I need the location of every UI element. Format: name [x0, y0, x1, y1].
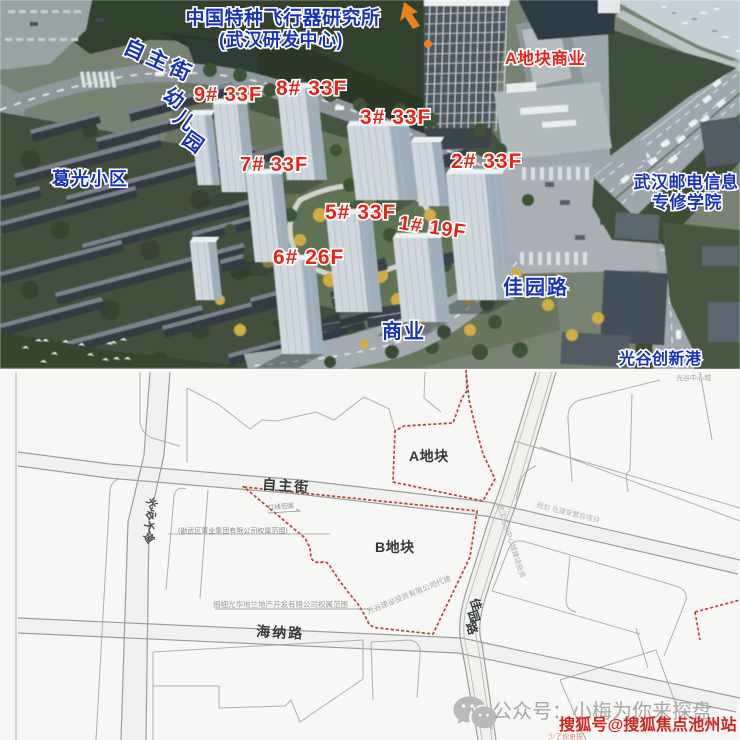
svg-text:中国特种飞行器研究所: 中国特种飞行器研究所 [185, 6, 380, 29]
svg-text:9# 33F: 9# 33F [194, 84, 262, 106]
svg-text:A地块: A地块 [409, 448, 449, 464]
svg-text:佳园路: 佳园路 [503, 275, 569, 299]
svg-text:B地块: B地块 [375, 539, 415, 555]
svg-text:武汉邮电信息: 武汉邮电信息 [634, 172, 739, 192]
svg-text:葛光小区: 葛光小区 [51, 168, 128, 189]
svg-text:自主街: 自主街 [262, 476, 311, 495]
svg-text:专修学院: 专修学院 [652, 192, 722, 212]
svg-text:A地块商业: A地块商业 [505, 48, 585, 68]
svg-text:商业: 商业 [382, 319, 426, 343]
svg-text:5# 33F: 5# 33F [325, 201, 396, 224]
svg-text:搜狐号@搜狐焦点池州站: 搜狐号@搜狐焦点池州站 [559, 715, 737, 734]
svg-text:8# 33F: 8# 33F [276, 77, 347, 100]
svg-text:光谷创新港: 光谷创新港 [618, 349, 702, 368]
svg-text:7# 33F: 7# 33F [240, 154, 308, 176]
svg-text:6# 26F: 6# 26F [273, 246, 344, 269]
svg-text:3# 33F: 3# 33F [360, 106, 431, 129]
svg-text:细细光华地兰地产开发有限公司权属范围: 细细光华地兰地产开发有限公司权属范围 [213, 599, 348, 609]
svg-text:海纳路: 海纳路 [256, 623, 305, 641]
svg-text:(武汉研发中心): (武汉研发中心) [219, 29, 343, 50]
svg-text:2# 33F: 2# 33F [451, 150, 522, 173]
svg-text:光谷中心城: 光谷中心城 [676, 373, 711, 382]
svg-text:少了你来探: 少了你来探 [548, 732, 583, 740]
